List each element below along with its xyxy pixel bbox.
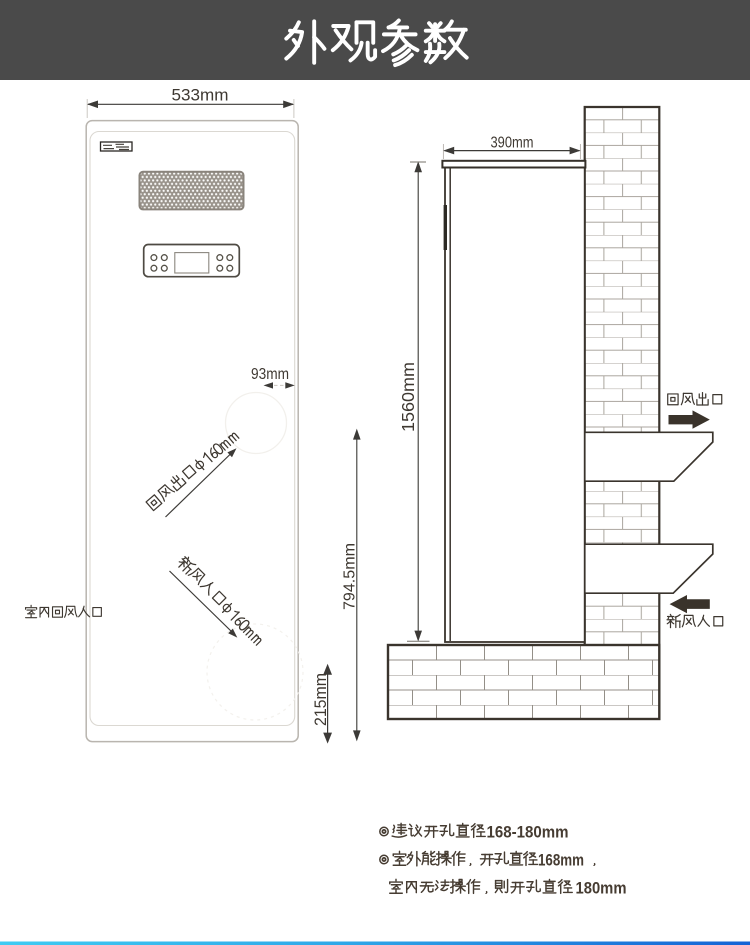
svg-text:794.5mm: 794.5mm [342,543,359,610]
svg-text:390mm: 390mm [491,134,534,151]
svg-text:168-180mm: 168-180mm [487,823,569,842]
svg-text:215mm: 215mm [311,673,330,726]
svg-text:1560mm: 1560mm [398,362,418,432]
svg-text:93mm: 93mm [251,366,289,383]
svg-text:533mm: 533mm [172,87,229,105]
svg-text:180mm: 180mm [576,879,627,898]
svg-text:168mm: 168mm [538,851,584,870]
